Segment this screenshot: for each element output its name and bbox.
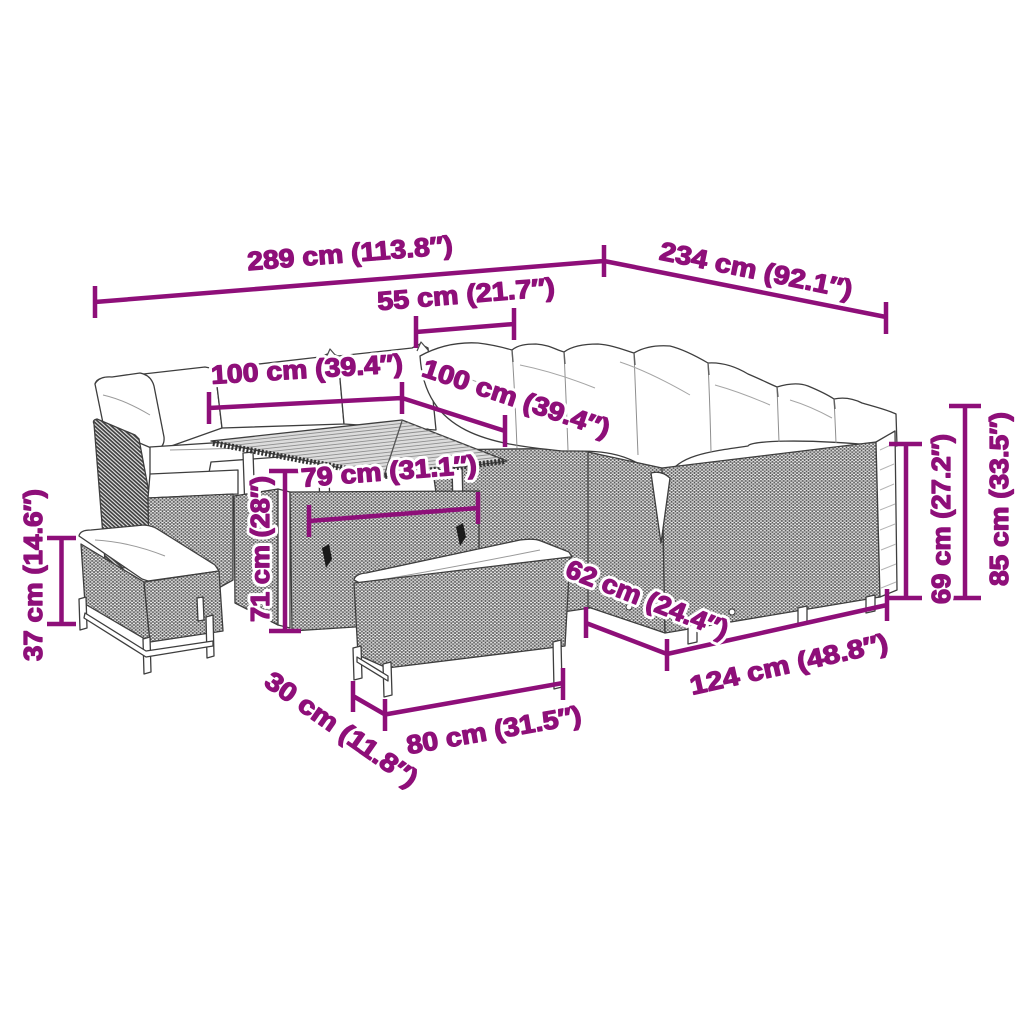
svg-text:37 cm (14.6″): 37 cm (14.6″) [18,489,48,661]
svg-text:85 cm (33.5″): 85 cm (33.5″) [984,412,1014,586]
svg-text:69 cm (27.2″): 69 cm (27.2″) [926,434,956,604]
svg-text:71 cm (28″): 71 cm (28″) [245,476,275,622]
